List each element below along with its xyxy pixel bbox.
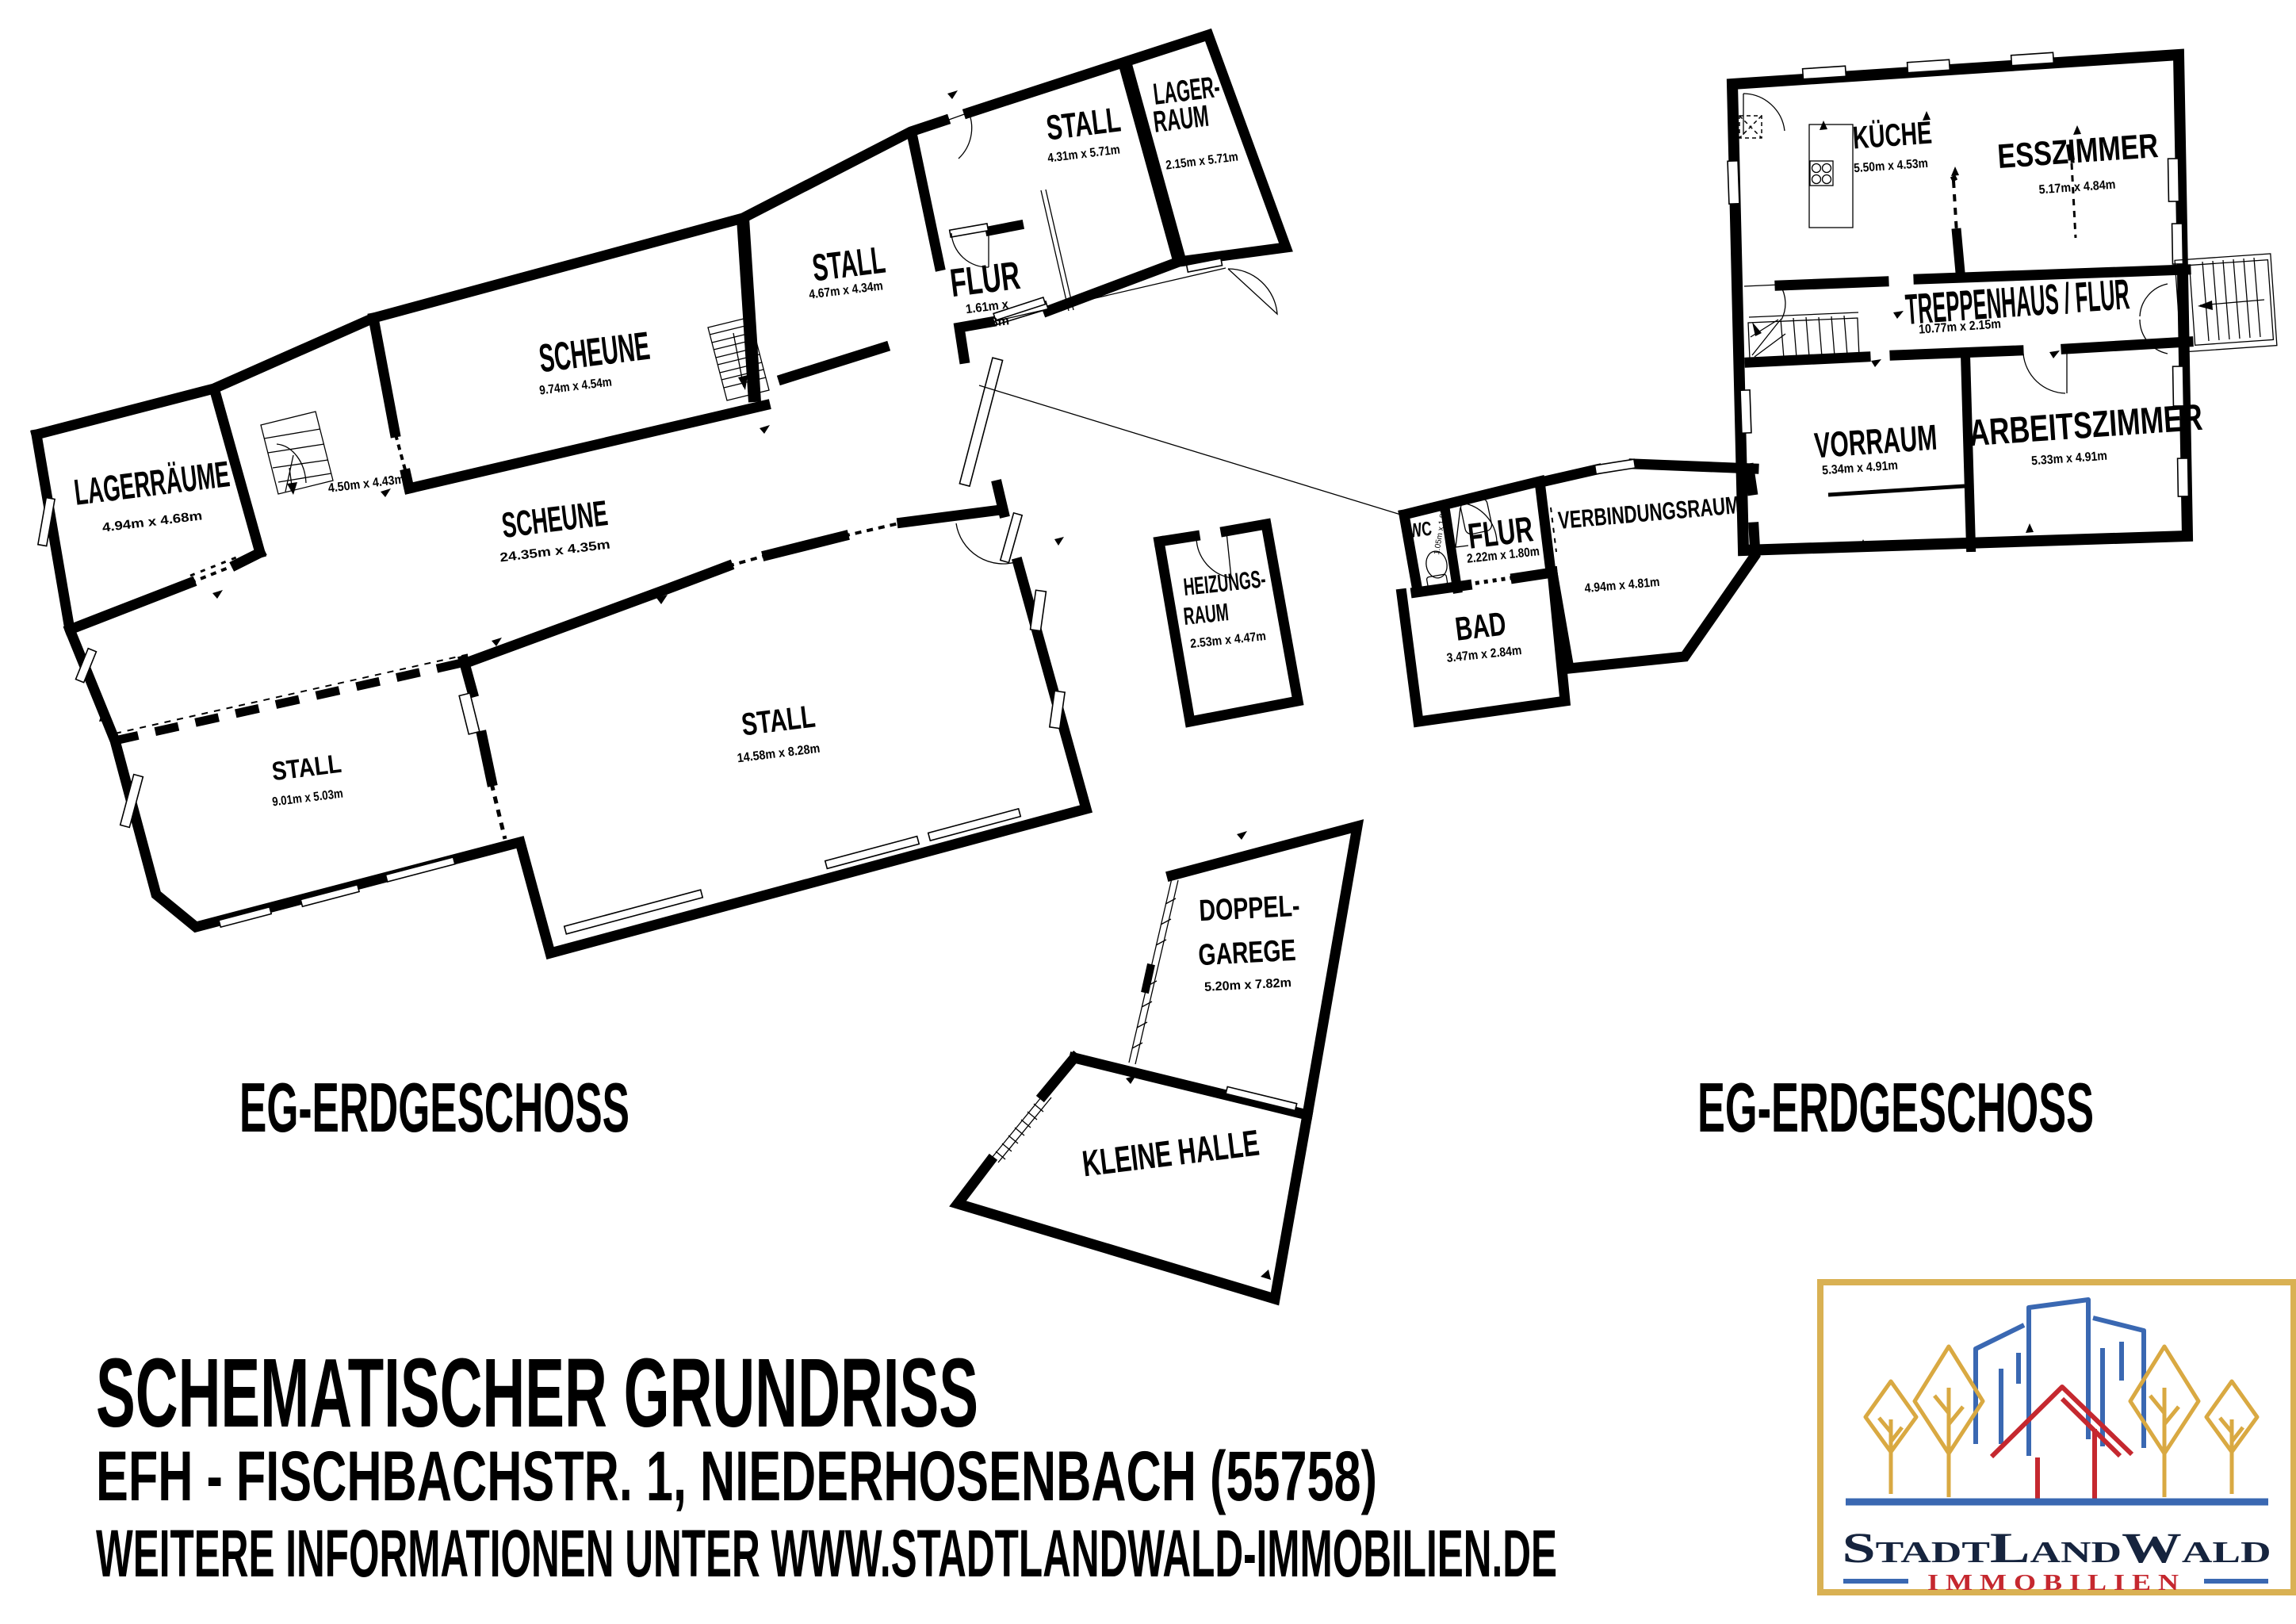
svg-text:RAUM: RAUM — [1151, 100, 1211, 140]
svg-text:SCHEMATISCHER GRUNDRISS: SCHEMATISCHER GRUNDRISS — [96, 1339, 978, 1448]
svg-text:WEITERE INFORMATIONEN UNTER WW: WEITERE INFORMATIONEN UNTER WWW.STADTLAN… — [96, 1516, 1557, 1591]
svg-text:RAUM: RAUM — [1182, 598, 1230, 630]
svg-text:BAD: BAD — [1453, 604, 1508, 647]
svg-text:EFH - FISCHBACHSTR. 1, NIEDERH: EFH - FISCHBACHSTR. 1, NIEDERHOSENBACH (… — [96, 1436, 1377, 1515]
svg-text:GAREGE: GAREGE — [1197, 934, 1296, 972]
svg-text:DOPPEL-: DOPPEL- — [1198, 890, 1300, 929]
svg-text:EG-ERDGESCHOSS: EG-ERDGESCHOSS — [239, 1068, 629, 1147]
svg-text:FLUR: FLUR — [947, 253, 1022, 305]
svg-text:VORRAUM: VORRAUM — [1813, 417, 1938, 466]
svg-text:IMMOBILIEN: IMMOBILIEN — [1927, 1571, 2186, 1595]
svg-text:EG-ERDGESCHOSS: EG-ERDGESCHOSS — [1697, 1068, 2094, 1147]
svg-text:KÜCHE: KÜCHE — [1851, 115, 1933, 156]
svg-text:WC: WC — [1407, 518, 1433, 542]
svg-text:StadtLandWald: StadtLandWald — [1843, 1524, 2271, 1572]
